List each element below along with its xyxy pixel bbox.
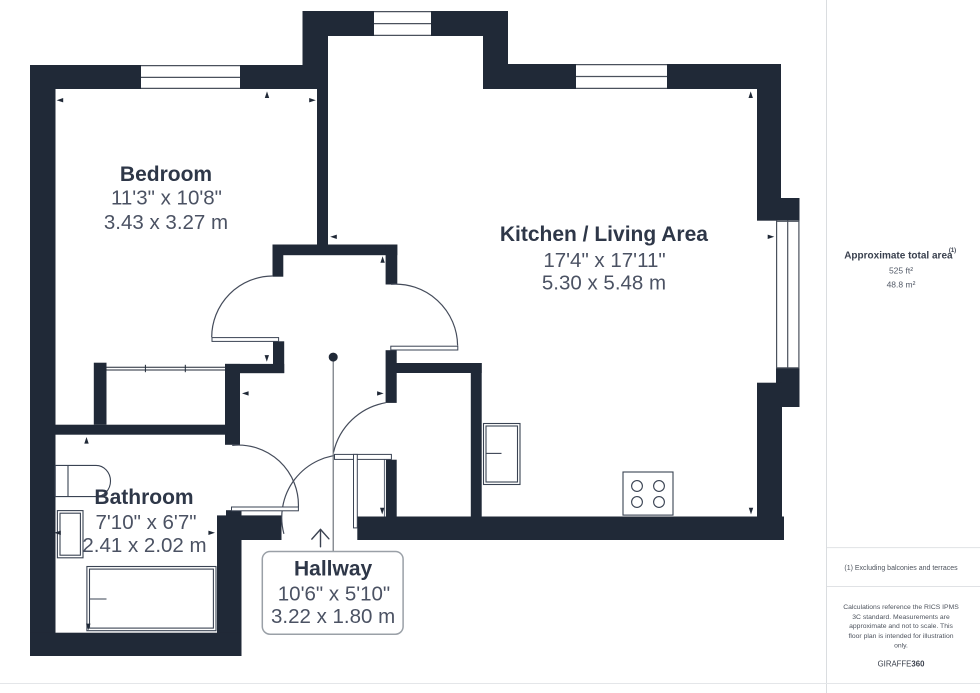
svg-text:Calculations reference the RIC: Calculations reference the RICS IPMS <box>843 604 959 611</box>
svg-text:Hallway: Hallway <box>294 558 373 581</box>
svg-text:3.22 x 1.80 m: 3.22 x 1.80 m <box>271 605 395 628</box>
svg-text:floor plan is intended for ill: floor plan is intended for illustration <box>848 633 953 640</box>
svg-text:only.: only. <box>894 643 908 650</box>
svg-text:17'4" x 17'11": 17'4" x 17'11" <box>543 249 665 272</box>
svg-text:Kitchen / Living Area: Kitchen / Living Area <box>500 223 708 246</box>
svg-text:10'6" x 5'10": 10'6" x 5'10" <box>278 583 390 606</box>
svg-text:5.30 x 5.48 m: 5.30 x 5.48 m <box>542 271 666 294</box>
svg-text:48.8 m²: 48.8 m² <box>887 280 916 290</box>
svg-text:(1): (1) <box>949 248 956 254</box>
svg-text:2.41 x 2.02 m: 2.41 x 2.02 m <box>82 534 206 557</box>
svg-text:Approximate total area: Approximate total area <box>844 251 953 262</box>
svg-text:Bathroom: Bathroom <box>94 486 193 509</box>
svg-text:525 ft²: 525 ft² <box>889 265 913 275</box>
svg-text:11'3" x 10'8": 11'3" x 10'8" <box>111 187 222 210</box>
svg-text:7'10" x 6'7": 7'10" x 6'7" <box>95 511 196 534</box>
svg-text:Bedroom: Bedroom <box>120 163 212 186</box>
svg-text:(1) Excluding balconies and te: (1) Excluding balconies and terraces <box>844 565 958 572</box>
svg-text:3C standard. Measurements are: 3C standard. Measurements are <box>852 614 950 621</box>
svg-text:approximate and not to scale.: approximate and not to scale. This <box>849 623 953 630</box>
svg-text:GIRAFFE360: GIRAFFE360 <box>878 660 925 669</box>
svg-text:3.43 x 3.27 m: 3.43 x 3.27 m <box>104 211 228 234</box>
